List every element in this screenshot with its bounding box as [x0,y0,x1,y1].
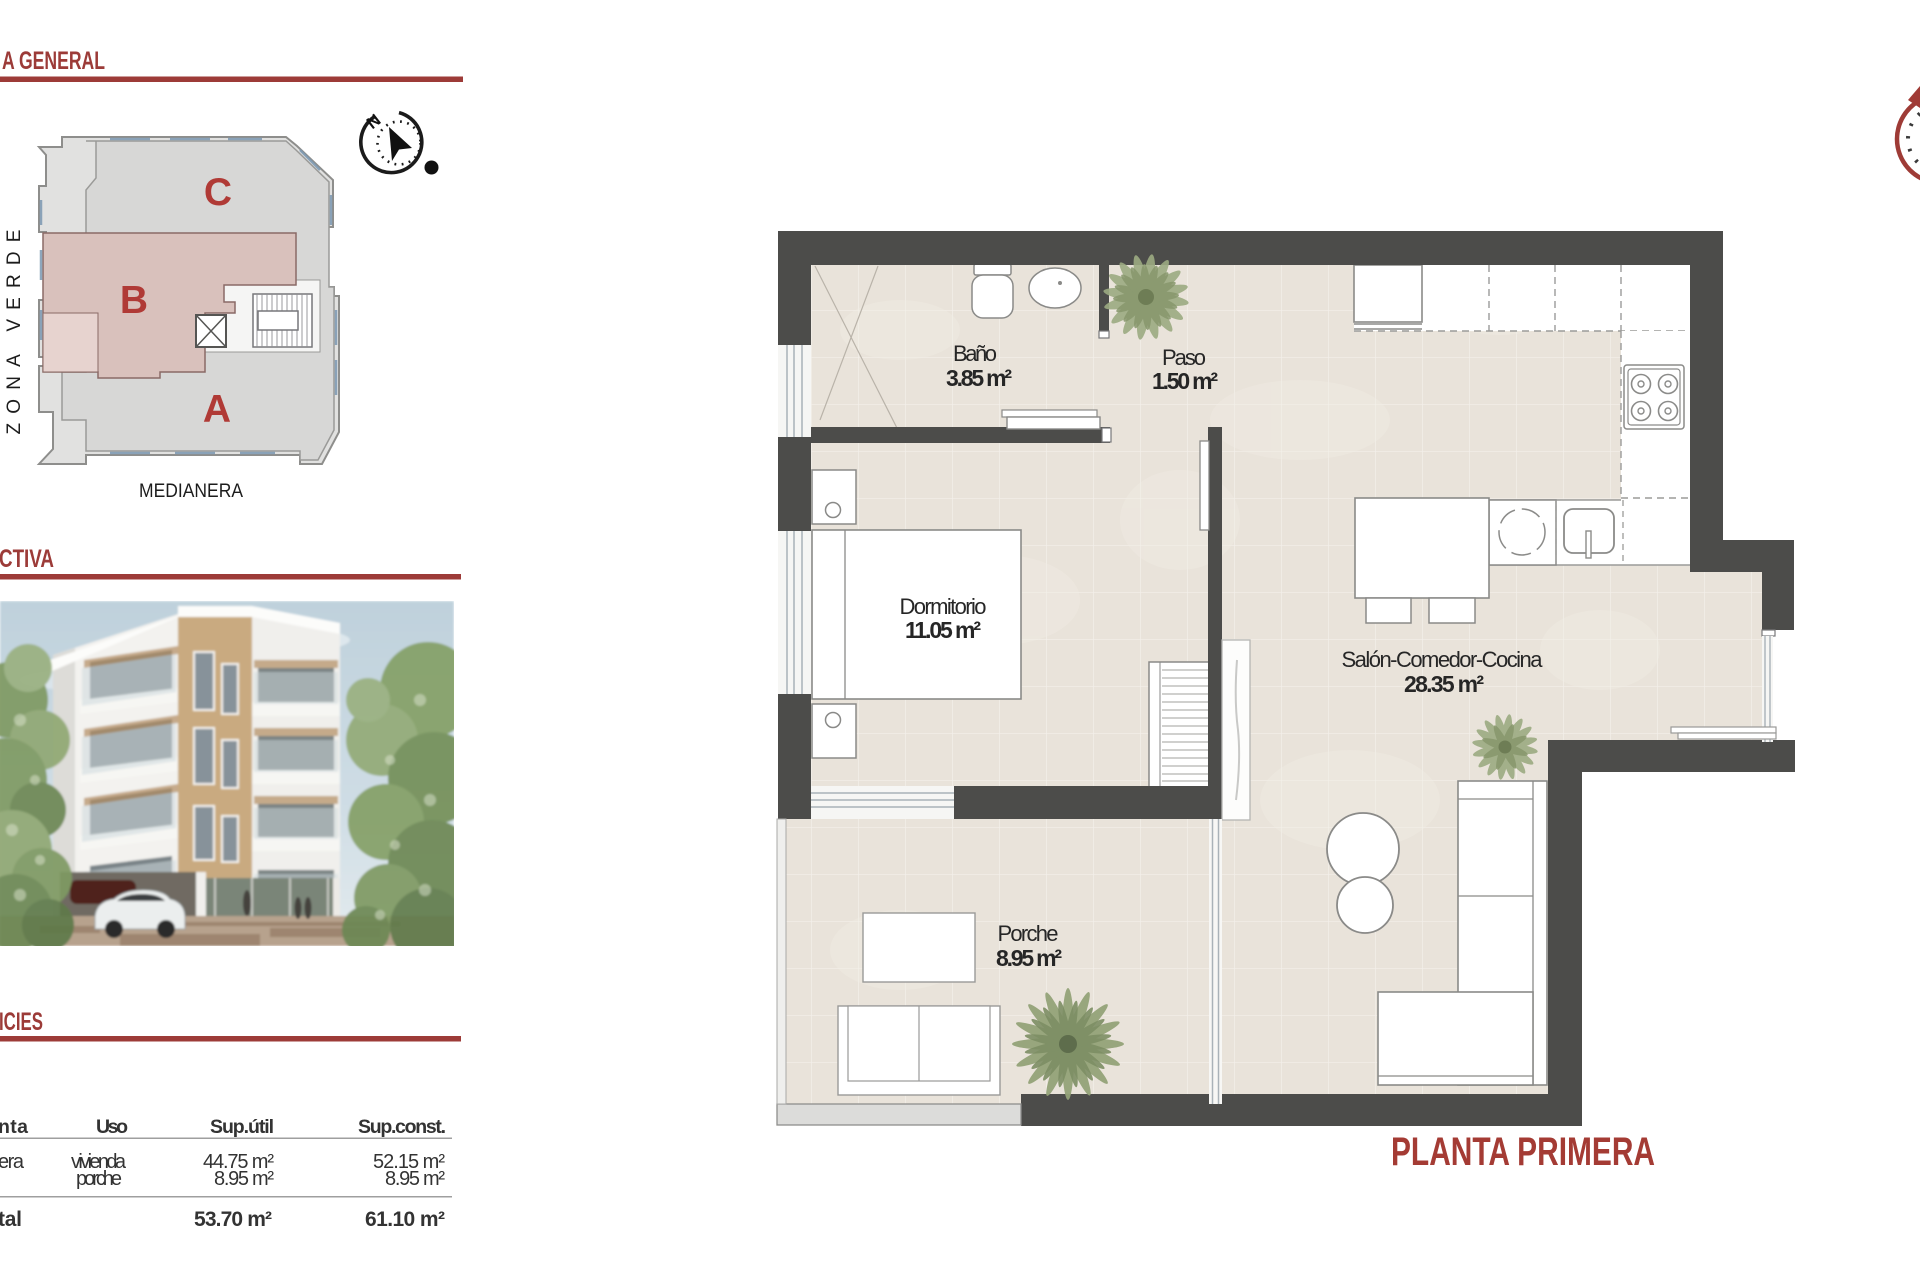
svg-text:A GENERAL: A GENERAL [2,47,105,75]
svg-text:8.95 m²: 8.95 m² [385,1168,445,1190]
svg-text:1.50 m²: 1.50 m² [1152,368,1218,394]
svg-text:Porche: Porche [998,921,1059,946]
svg-text:porche: porche [76,1168,122,1190]
svg-text:8.95 m²: 8.95 m² [214,1168,274,1190]
svg-text:nta: nta [0,1116,28,1138]
svg-text:A: A [203,388,231,431]
svg-text:tal: tal [0,1208,22,1231]
svg-text:11.05 m²: 11.05 m² [905,617,981,643]
svg-text:Sup.const.: Sup.const. [358,1116,446,1138]
svg-text:Sup.útil: Sup.útil [210,1116,274,1138]
svg-text:PLANTA PRIMERA: PLANTA PRIMERA [1391,1130,1655,1174]
svg-text:Paso: Paso [1162,345,1206,370]
svg-text:Baño: Baño [953,341,997,366]
svg-text:Dormitorio: Dormitorio [900,594,987,619]
svg-text:ICIES: ICIES [0,1008,43,1036]
svg-text:53.70 m²: 53.70 m² [194,1208,272,1231]
svg-text:B: B [120,279,148,322]
svg-text:era: era [0,1151,25,1173]
svg-text:28.35 m²: 28.35 m² [1404,671,1484,697]
svg-text:C: C [204,171,232,214]
svg-text:ZONA VERDE: ZONA VERDE [4,230,25,435]
svg-text:8.95 m²: 8.95 m² [996,945,1062,971]
svg-text:3.85 m²: 3.85 m² [946,365,1012,391]
svg-text:CTIVA: CTIVA [0,545,54,573]
svg-text:Uso: Uso [96,1116,128,1138]
svg-text:Salón-Comedor-Cocina: Salón-Comedor-Cocina [1342,647,1544,672]
svg-text:MEDIANERA: MEDIANERA [139,481,243,502]
svg-text:61.10 m²: 61.10 m² [365,1208,445,1231]
